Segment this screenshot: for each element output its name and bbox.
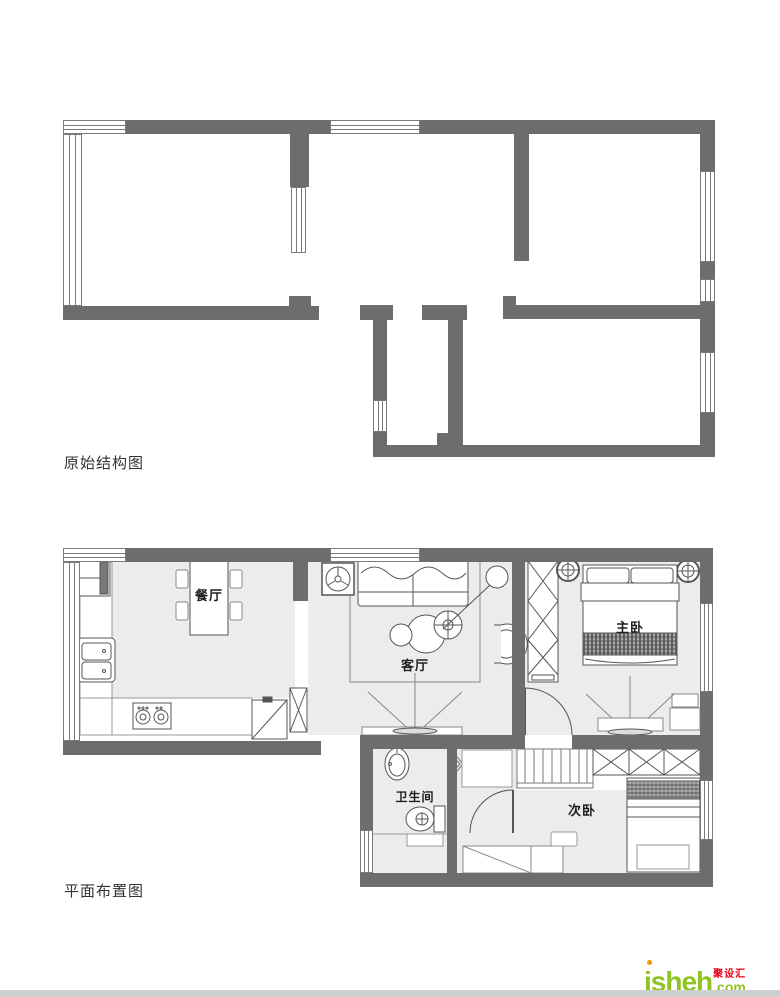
wall bbox=[373, 445, 713, 457]
window-icon bbox=[700, 780, 713, 840]
wall bbox=[700, 302, 715, 352]
wall bbox=[700, 562, 713, 603]
wardrobe-icon bbox=[528, 561, 558, 682]
window-icon bbox=[63, 120, 126, 134]
window-icon bbox=[700, 171, 715, 262]
wash-basin-icon bbox=[385, 748, 409, 780]
wall bbox=[420, 548, 713, 562]
furniture-layer bbox=[63, 545, 715, 890]
floor-plan-furnished: 餐厅 客厅 主卧 卫生间 次卧 bbox=[63, 545, 715, 890]
wall bbox=[126, 120, 330, 134]
window-icon bbox=[700, 279, 715, 302]
window-icon bbox=[63, 134, 82, 306]
wall bbox=[448, 320, 463, 445]
plan2-caption: 平面布置图 bbox=[64, 880, 144, 901]
logo-dot-icon bbox=[647, 960, 652, 965]
washer-icon bbox=[373, 834, 447, 846]
wall bbox=[373, 432, 387, 445]
wall bbox=[514, 134, 529, 261]
window-icon bbox=[330, 120, 420, 134]
wall bbox=[700, 840, 713, 887]
wall bbox=[437, 433, 463, 445]
wall bbox=[293, 562, 308, 601]
plan1-caption: 原始结构图 bbox=[64, 452, 144, 473]
window-icon bbox=[360, 830, 373, 873]
wall bbox=[360, 305, 393, 320]
tv-icon bbox=[586, 676, 674, 735]
wardrobe-icon bbox=[593, 749, 700, 775]
wall bbox=[517, 735, 525, 749]
wall bbox=[700, 692, 713, 780]
page: 原始结构图 bbox=[0, 0, 780, 997]
window-icon bbox=[700, 352, 715, 413]
window-icon bbox=[700, 603, 713, 692]
shoe-cabinet-icon bbox=[517, 749, 593, 788]
nightstand-icon bbox=[670, 694, 700, 730]
wall bbox=[289, 296, 311, 306]
wall bbox=[373, 320, 387, 400]
master-label: 主卧 bbox=[602, 617, 658, 636]
fan-unit-icon bbox=[322, 563, 354, 595]
door-swing-icon bbox=[470, 790, 513, 833]
door-swing-icon bbox=[525, 688, 572, 735]
window-icon bbox=[63, 562, 80, 741]
wall bbox=[503, 305, 700, 319]
wall bbox=[360, 873, 713, 887]
wall bbox=[126, 548, 330, 562]
wall bbox=[700, 120, 715, 171]
wall bbox=[360, 735, 517, 749]
dining-label: 餐厅 bbox=[181, 585, 237, 604]
wall bbox=[447, 749, 457, 873]
living-label: 客厅 bbox=[387, 655, 443, 674]
window-icon bbox=[291, 187, 306, 253]
window-icon bbox=[373, 400, 387, 432]
bottom-divider bbox=[0, 990, 780, 997]
site-logo: jsheh 聚设汇 .com bbox=[644, 958, 778, 994]
single-bed-icon bbox=[627, 778, 700, 872]
wall bbox=[63, 306, 319, 320]
cabinet-x-icon bbox=[252, 688, 307, 739]
wall bbox=[63, 741, 321, 755]
bath-label: 卫生间 bbox=[383, 788, 447, 805]
stool-icon bbox=[551, 832, 577, 846]
floor-plan-original bbox=[63, 110, 715, 460]
wall bbox=[422, 305, 467, 320]
double-bed-icon bbox=[581, 565, 679, 665]
desk-icon bbox=[463, 846, 563, 873]
wall bbox=[360, 749, 373, 830]
wall bbox=[700, 262, 715, 279]
wall bbox=[512, 548, 525, 735]
wall bbox=[290, 134, 309, 187]
sofa-icon bbox=[358, 560, 468, 606]
second-label: 次卧 bbox=[554, 800, 610, 819]
hall-cabinet-icon bbox=[462, 750, 512, 787]
coffee-table-icon bbox=[390, 611, 462, 653]
window-icon bbox=[330, 548, 420, 562]
window-icon bbox=[63, 548, 126, 562]
wall bbox=[420, 120, 713, 134]
wall bbox=[503, 296, 516, 305]
stove-icon bbox=[133, 703, 171, 729]
toilet-icon bbox=[406, 806, 445, 832]
wall bbox=[572, 735, 700, 749]
